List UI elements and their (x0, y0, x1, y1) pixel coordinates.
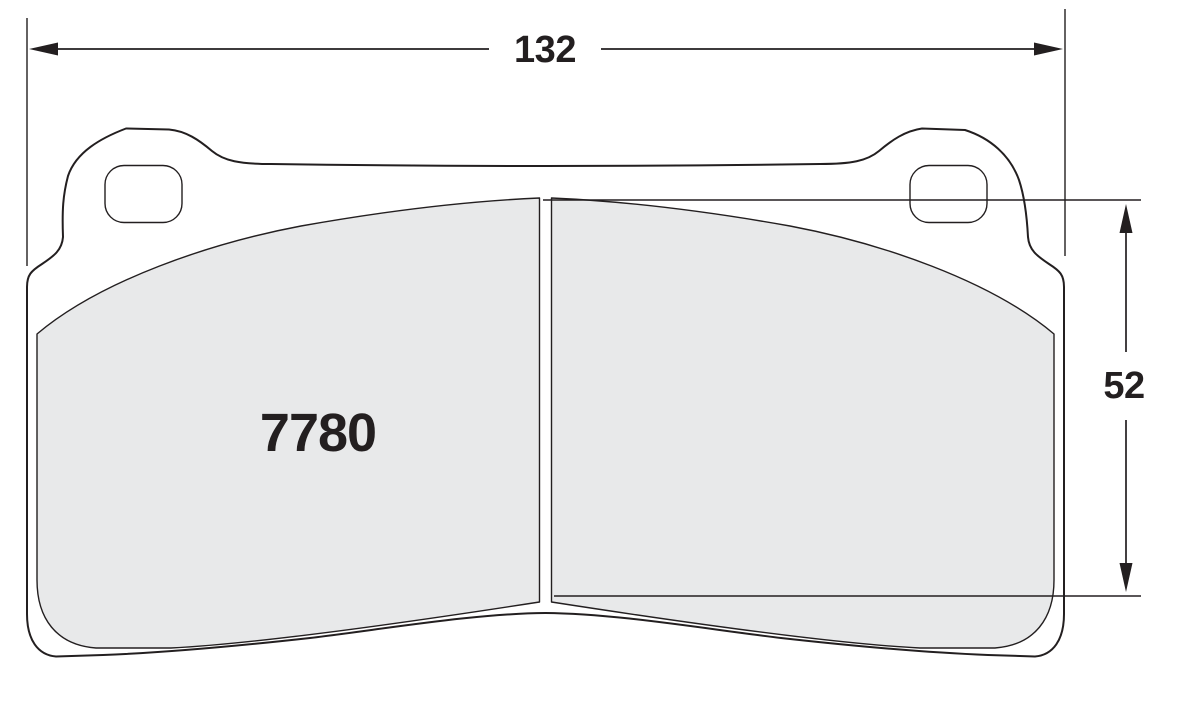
brake-pad-diagram-canvas: 7780 132 52 (0, 0, 1185, 705)
part-number-label: 7780 (260, 403, 376, 463)
arrow-up-icon (1120, 204, 1133, 233)
height-dimension-label: 52 (1103, 365, 1144, 407)
left-mounting-hole (105, 166, 182, 223)
width-dimension-label: 132 (514, 29, 576, 71)
arrow-right-icon (1034, 43, 1063, 56)
right-mounting-hole (910, 166, 987, 223)
arrow-left-icon (29, 43, 58, 56)
arrow-down-icon (1120, 563, 1133, 592)
brake-pad-technical-drawing: 7780 132 52 (0, 0, 1185, 705)
